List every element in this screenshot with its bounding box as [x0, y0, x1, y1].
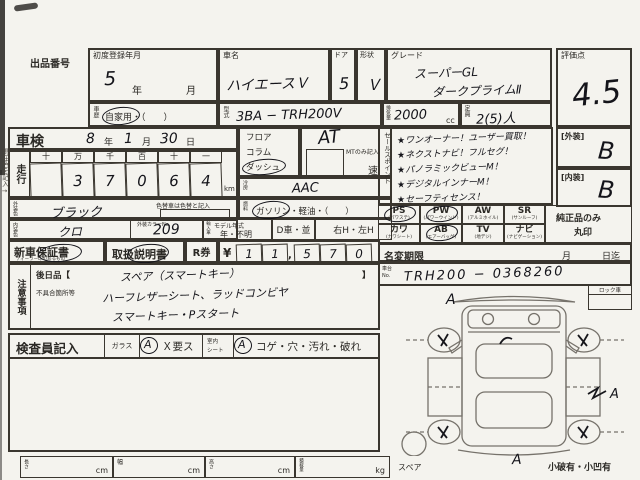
mileage-col-2: 千 — [94, 150, 126, 163]
equipment-sub: (地デジ) — [465, 236, 501, 241]
seat-label-cell: 室内 シート — [202, 335, 234, 357]
new-car-warranty-sub: ディーラー印のあるもの — [16, 256, 65, 262]
recycle-amount-cell: ¥ 1 1 , 5 7 0 — [218, 240, 380, 263]
grade-label: グレード — [391, 52, 423, 61]
seat-label2: シート — [207, 346, 224, 354]
scan-artifact — [14, 2, 39, 11]
ext-color-change-box — [160, 209, 230, 219]
mileage-col-4: 十 — [158, 150, 190, 163]
equipment-navi: ナビ (ナビゲーション) — [504, 224, 545, 243]
equipment-abbr: PW — [421, 207, 461, 216]
auction-sheet: 現在色を記入→ 出品番号 初度登録年月 5 年 月 車名 ハイエースＶ ドア 5… — [0, 0, 640, 480]
scan-artifact — [0, 170, 2, 480]
car-name-label: 車名 — [223, 52, 239, 61]
oem-note-line1: 純正品のみ — [556, 211, 601, 224]
equipment-sub: (パワーウインド) — [423, 217, 459, 222]
fuel-cell: 燃料 ガソリン・軽油・（ ） — [238, 198, 392, 219]
spare-label: スペア — [398, 462, 421, 473]
mileage-col-1: 万 — [62, 150, 94, 163]
color-no-cell: 外装カラーNo. 209 — [130, 219, 203, 240]
shape-cell: 形状 Ｖ — [356, 48, 386, 102]
defect-label: 不具合箇所等 — [36, 287, 75, 297]
later-item-close: 】 — [362, 269, 371, 281]
first-registration-label: 初度登録年月 — [93, 52, 141, 61]
shaken-month: 1 — [124, 131, 133, 147]
year-suffix: 年 — [132, 82, 142, 97]
equipment-leather: カワ (カワシート) — [378, 224, 420, 243]
mileage-digit-4: 6 — [157, 162, 190, 198]
inspector-cell: 検査員記入 ガラス A Ｘ要ス 室内 シート A コゲ・穴・汚れ・破れ — [8, 333, 380, 452]
name-change-label: 名変期限 — [384, 248, 424, 263]
width-unit: cm — [188, 466, 200, 475]
equipment-sub: (エアーバッグ) — [423, 236, 459, 241]
mileage-digit-1: 3 — [61, 162, 94, 198]
length-label: 長さ — [23, 459, 28, 469]
ac-label: 冷房 — [242, 180, 247, 190]
fuel-label: 燃料 — [242, 201, 247, 211]
score-cell: 評価点 4.5 — [556, 48, 632, 127]
height-unit: cm — [278, 466, 290, 475]
notes-line2: スマートキー・Pスタート — [112, 305, 240, 325]
int-color-value: クロ — [58, 223, 83, 241]
equipment-sub: (パワステ) — [381, 217, 417, 222]
equipment-sub: (サンルーフ) — [507, 217, 542, 222]
width-label: 幅 — [117, 460, 123, 467]
glass-label: ガラス — [104, 335, 140, 357]
manual-cell: 取扱説明書 — [105, 240, 185, 263]
name-change-cell: 名変期限 月 日迄 — [378, 243, 632, 262]
yen-sign: ¥ — [223, 246, 231, 260]
grade-line1: スーパーGL — [414, 63, 478, 82]
height-cell: 高さ cm — [205, 456, 295, 478]
interior-grade-value: B — [597, 175, 615, 204]
score-value: 4.5 — [570, 74, 623, 115]
shaken-day-l: 日 — [186, 135, 195, 148]
later-item-label: 後日品【 — [36, 269, 70, 281]
width-cell: 幅 cm — [113, 456, 205, 478]
equipment-ab: AB (エアーバッグ) — [420, 224, 462, 243]
damage-note: 小破有・小凹有 — [548, 460, 611, 473]
recycle-ticket-label: R券 — [185, 240, 218, 263]
seat-mark: A — [238, 338, 246, 351]
load-cell: 積載量 kg — [295, 456, 390, 478]
mileage-digit-5: 4 — [189, 162, 222, 198]
roof-panel-front — [476, 344, 552, 378]
length-cell: 長さ cm — [20, 456, 113, 478]
door-label: ドア — [334, 52, 348, 60]
notes-line1: ハーフレザーシート、ラッドコンビヤ — [102, 284, 288, 306]
model-code-label: 型式 — [222, 106, 228, 118]
shaken-cell: 車検 8 年 1 月 30 日 — [8, 127, 238, 150]
shift-position-cell: フロア コラム ダッシュ — [238, 127, 300, 177]
mileage-col-5: 一 — [190, 150, 222, 163]
shaken-label: 車検 — [16, 131, 44, 151]
displacement-cell: 排気量 2000 cc — [382, 102, 460, 127]
amount-digit: 1 — [262, 244, 289, 265]
seat-label1: 室内 — [207, 337, 218, 345]
grade-line2: ダークプライムⅡ — [432, 80, 522, 100]
history-value: 自家用・（ ） — [105, 110, 173, 123]
equipment-sr: SR (サンルーフ) — [504, 205, 545, 224]
mileage-col-3: 百 — [126, 150, 158, 163]
inspector-label: 検査員記入 — [16, 338, 79, 357]
chassis-cell: 車台No. TRH200 − 0368260 — [378, 262, 632, 286]
shaken-year-l: 年 — [104, 135, 113, 148]
capacity-cell: 定員 2(5)人 — [460, 102, 552, 127]
shift-opt3: ダッシュ — [246, 161, 280, 173]
oem-note-line2: 丸印 — [574, 225, 592, 238]
history-label: 車歴 — [92, 106, 98, 118]
hand-marks — [438, 334, 606, 438]
front-damage-mark: A — [445, 292, 456, 308]
side-damage-mark: A — [609, 387, 619, 402]
spare-tire-circle — [402, 432, 426, 456]
mileage-digit-0 — [29, 162, 62, 198]
car-name-cell: 車名 ハイエースＶ — [218, 48, 330, 102]
new-car-warranty-cell: 新車保証書 ディーラー印のあるもの — [8, 240, 105, 263]
displacement-unit: cc — [446, 116, 455, 125]
equipment-sub: (アルミホイル) — [465, 217, 501, 222]
load-label: 積載量 — [298, 458, 303, 472]
equipment-abbr: AB — [421, 226, 461, 235]
oem-only-note-cell: 純正品のみ 丸印 — [545, 205, 632, 243]
equipment-ps: PS (パワステ) — [378, 205, 420, 224]
interior-grade-label: [内装] — [561, 172, 584, 183]
shape-value: Ｖ — [366, 74, 382, 96]
door-value: 5 — [339, 74, 350, 93]
amount-comma: , — [288, 250, 292, 261]
lot-number-label: 出品番号 — [30, 55, 70, 70]
sales-point: ★デジタルインナーM！ — [397, 174, 494, 190]
exterior-grade-value: B — [597, 136, 615, 165]
name-change-month: 月 — [562, 249, 571, 262]
glass-note: Ｘ要ス — [162, 339, 194, 354]
length-unit: cm — [96, 466, 108, 475]
displacement-value: 2000 — [394, 107, 428, 123]
shaken-month-l: 月 — [142, 135, 151, 148]
color-no-value: 209 — [153, 222, 180, 239]
equipment-sub: (カワシート) — [381, 236, 417, 241]
grade-cell: グレード スーパーGL ダークプライムⅡ — [386, 48, 552, 102]
sales-points-cell: セールスポイント ★ワンオーナー！ユーザー買取！ ★ネクストナビ！フルセグ！ ★… — [378, 127, 553, 205]
notes-cell: 注意事項 後日品【 スペア（スマートキー） 】 不具合箇所等 ハーフレザーシート… — [8, 263, 380, 330]
sales-points-label: セールスポイント — [383, 132, 390, 202]
ac-value: AAC — [292, 181, 319, 197]
later-item-value: スペア（スマートキー） — [120, 265, 240, 285]
diagram-center-mark: A — [512, 452, 522, 468]
mileage-digit-3: 0 — [125, 162, 158, 198]
history-cell: 車歴 自家用・（ ） — [88, 102, 218, 127]
model-year-cell: 輸入車 モデル年式 年・不明 — [203, 219, 272, 240]
capacity-value: 2(5)人 — [476, 107, 516, 127]
transmission-value: AT — [317, 126, 341, 149]
equipment-pw: PW (パワーウインド) — [420, 205, 462, 224]
mileage-label: 走行 — [8, 150, 30, 198]
model-year-value: 年・不明 — [220, 229, 252, 240]
chassis-value: TRH200 − 0368260 — [404, 264, 565, 285]
d-car-cell: D車・並 — [272, 219, 315, 240]
exterior-grade-cell: [外装] B — [556, 127, 632, 168]
amount-digit: 1 — [236, 244, 263, 265]
margin-note: 現在色を記入→ — [1, 148, 8, 195]
door-cell: ドア 5 — [330, 48, 356, 102]
shape-label: 形状 — [360, 52, 374, 60]
height-label: 高さ — [208, 459, 213, 469]
month-suffix: 月 — [186, 82, 196, 97]
amount-digit: 7 — [320, 244, 347, 265]
speed-suffix: 速 — [368, 162, 378, 177]
shaken-day: 30 — [160, 131, 178, 148]
seat-note: コゲ・穴・汚れ・破れ — [256, 339, 361, 354]
int-color-label: 内装色 — [12, 222, 17, 237]
glass-mark: A — [144, 338, 152, 351]
shift-opt2: コラム — [246, 146, 271, 158]
roof-panel-rear — [476, 392, 552, 428]
sales-point: ★セーフティセンス！ — [397, 189, 485, 205]
shaken-year: 8 — [86, 131, 95, 147]
equipment-aw: AW (アルミホイル) — [462, 205, 504, 224]
front-bumper — [453, 297, 575, 303]
mileage-digit-2: 7 — [93, 162, 126, 198]
interior-grade-cell: [内装] B — [556, 168, 632, 207]
score-label: 評価点 — [561, 52, 585, 61]
ext-color-cell: 外装色 ブラック 色替車は色替と記入 — [8, 198, 238, 219]
manual-label: 取扱説明書 — [112, 246, 167, 262]
load-unit: kg — [375, 466, 385, 475]
equipment-abbr: PS — [379, 207, 419, 216]
fuel-options: ガソリン・軽油・（ ） — [256, 205, 354, 217]
name-change-day: 日迄 — [602, 249, 620, 262]
first-registration-cell: 初度登録年月 5 年 月 — [88, 48, 218, 102]
chassis-label: 車台No. — [382, 266, 396, 279]
ac-cell: 冷房 AAC — [238, 177, 392, 198]
model-code-cell: 型式 3BA − TRH200V — [218, 102, 382, 127]
mileage-col-0: 十 — [30, 150, 62, 163]
car-name-value: ハイエースＶ — [226, 73, 310, 96]
ext-color-label: 外装色 — [12, 201, 17, 216]
shift-opt1: フロア — [246, 131, 272, 143]
amount-digit: 5 — [294, 244, 321, 265]
vehicle-top-view-diagram: A A — [398, 288, 630, 456]
sales-point: ★パノラミックビューM！ — [397, 159, 503, 176]
notes-label: 注意事項 — [10, 265, 31, 328]
first-registration-year: 5 — [104, 68, 117, 90]
model-code-value: 3BA − TRH200V — [236, 106, 342, 125]
mt-entry-box — [306, 149, 344, 177]
amount-digit: 0 — [346, 244, 373, 265]
mileage-unit: km — [224, 185, 235, 193]
equipment-tv: TV (地デジ) — [462, 224, 504, 243]
import-tag: 輸入車 — [205, 221, 210, 235]
displacement-label: 排気量 — [385, 105, 390, 120]
capacity-label: 定員 — [463, 105, 469, 117]
equipment-sub: (ナビゲーション) — [507, 236, 542, 241]
exterior-grade-label: [外装] — [561, 131, 584, 142]
